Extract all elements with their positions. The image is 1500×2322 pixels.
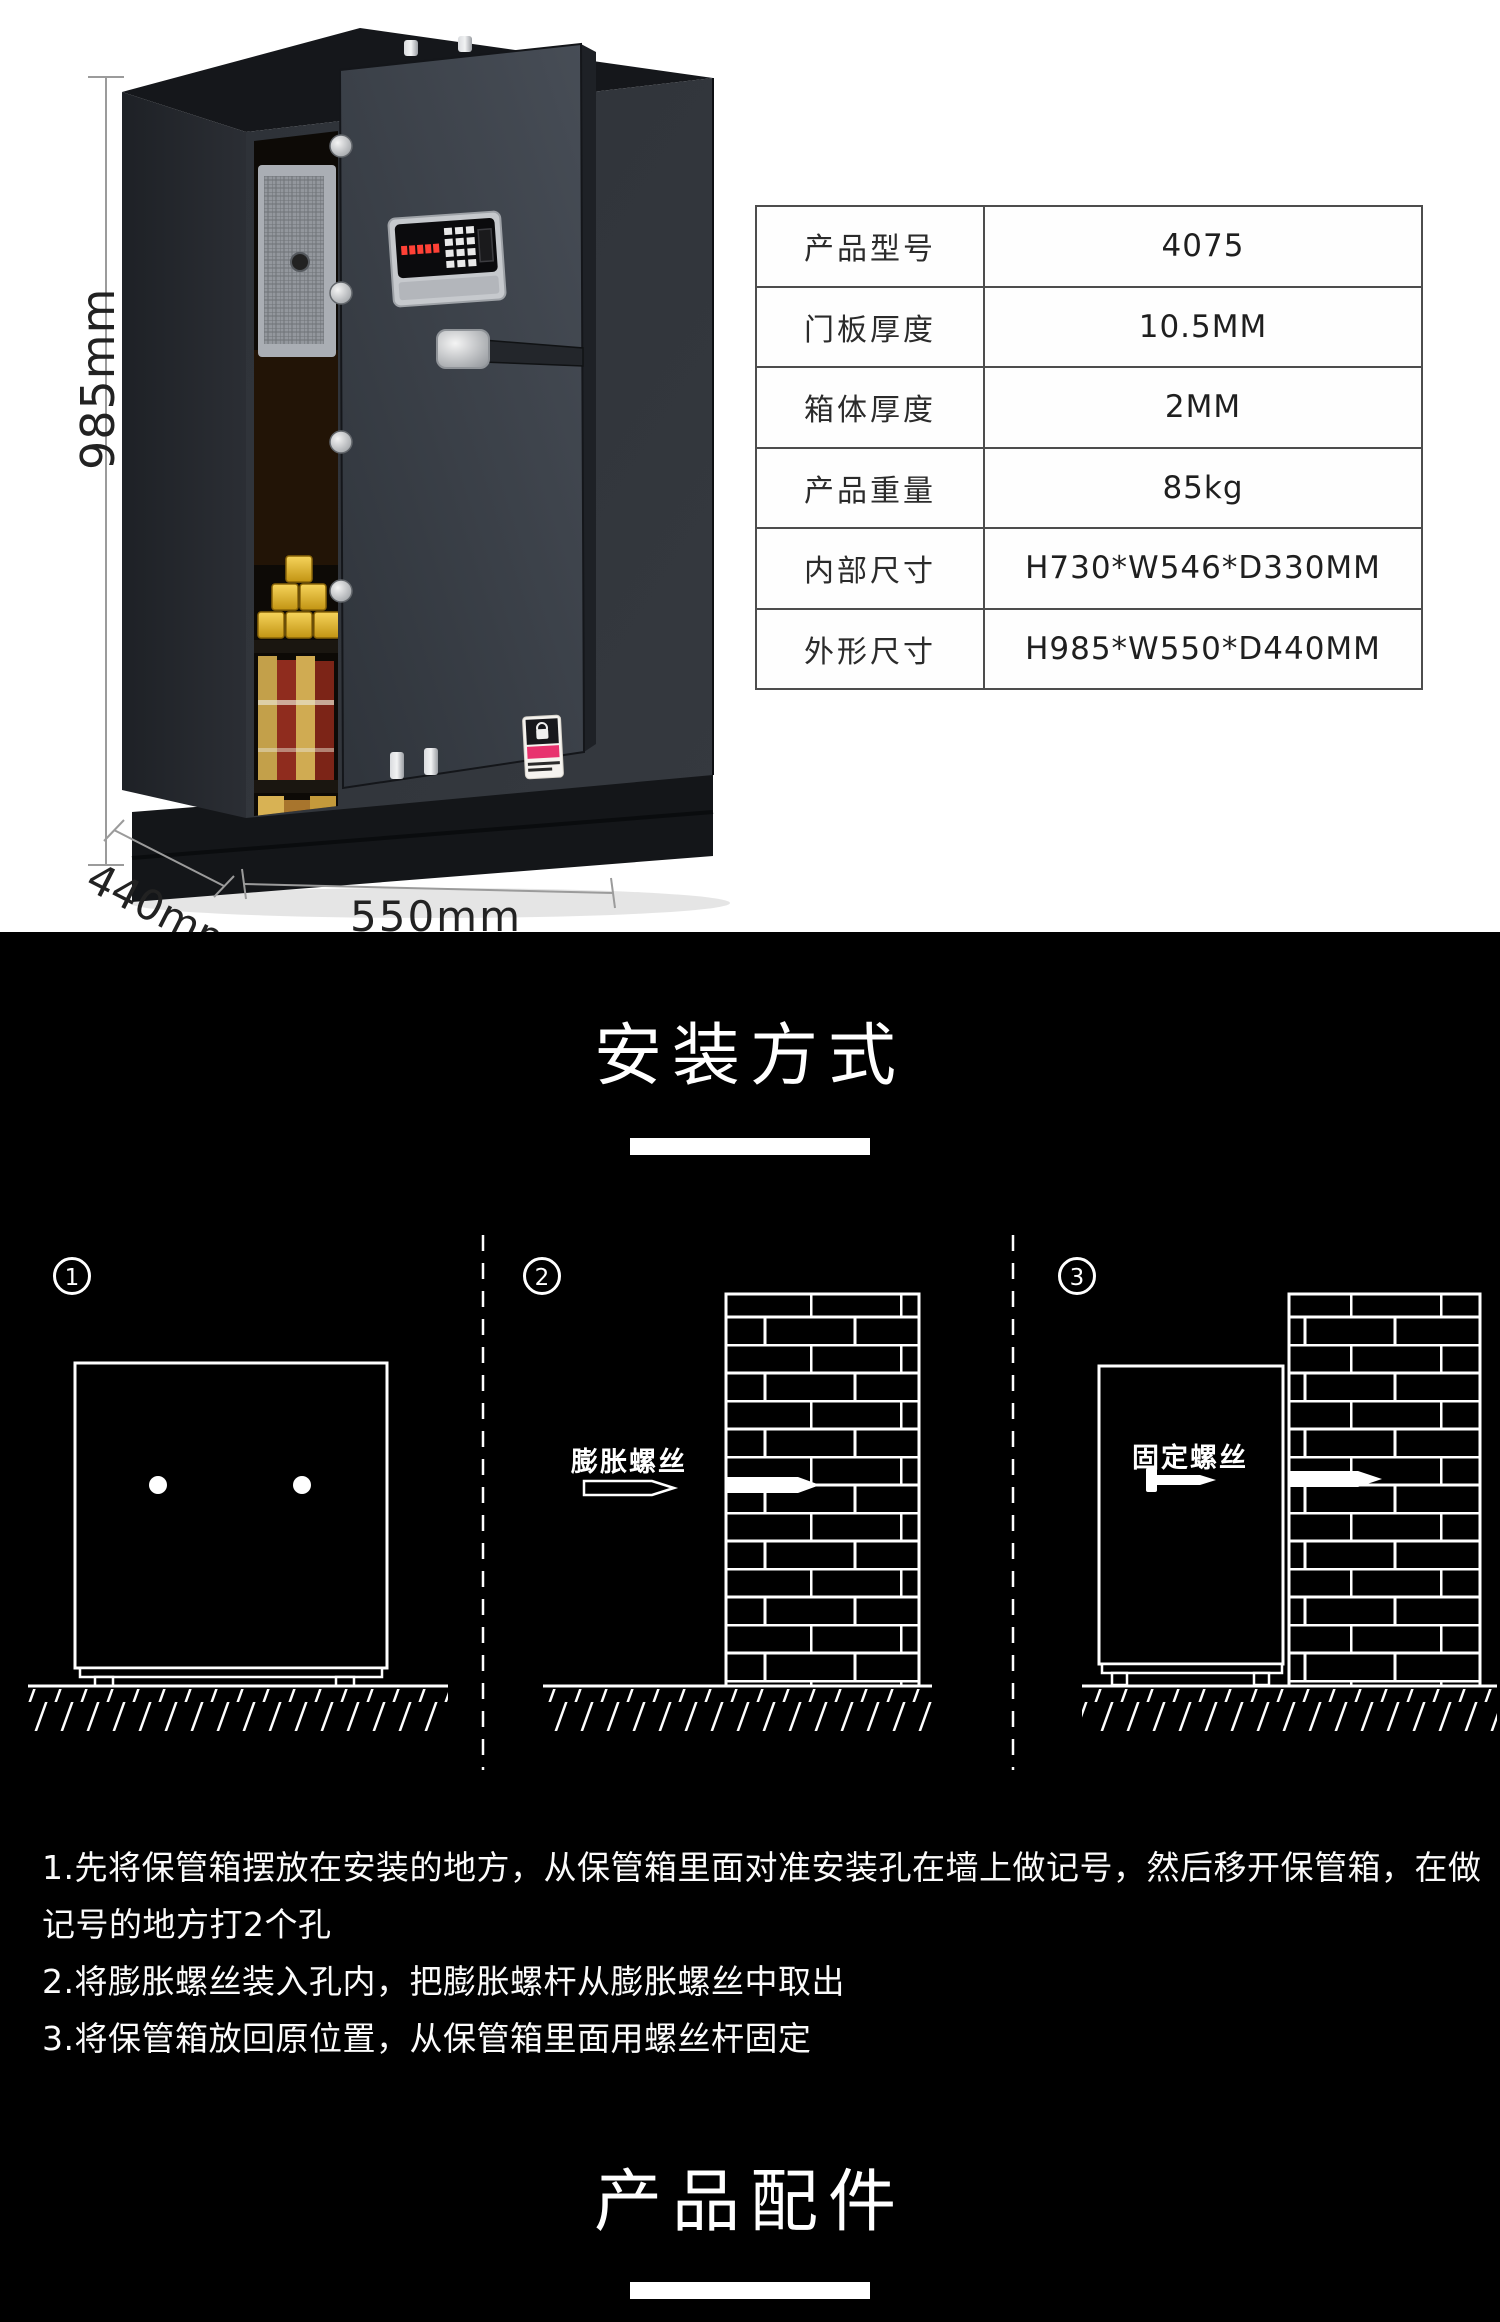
shelf	[252, 780, 340, 793]
fixing-screw-label: 固定螺丝	[1110, 1436, 1270, 1475]
ground-hatch	[28, 1689, 448, 1731]
step-2-badge: 2	[523, 1257, 561, 1295]
diagram-step-2	[543, 1294, 932, 1731]
safe-door	[330, 36, 596, 788]
door-bottom-bolt	[390, 752, 404, 779]
dimension-height-label: 985mm	[71, 330, 117, 470]
ground-hatch	[1082, 1689, 1497, 1731]
drill-hole-mark	[149, 1476, 167, 1494]
expansion-screw-icon	[584, 1481, 674, 1495]
spec-label: 产品重量	[757, 449, 985, 528]
brick-wall	[1289, 1294, 1480, 1686]
product-detail-page: 985mm 440mm 550mm 产品型号 4075 门板厚度 10.5MM …	[0, 0, 1500, 2322]
spec-label: 外形尺寸	[757, 610, 985, 689]
spec-value: H985*W550*D440MM	[985, 610, 1421, 689]
drill-hole-mark	[293, 1476, 311, 1494]
product-photo-section: 985mm 440mm 550mm 产品型号 4075 门板厚度 10.5MM …	[0, 0, 1500, 932]
spec-table: 产品型号 4075 门板厚度 10.5MM 箱体厚度 2MM 产品重量 85kg…	[755, 205, 1423, 690]
installation-title: 安装方式	[0, 1000, 1500, 1099]
instruction-line-1: 1.先将保管箱摆放在安装的地方，从保管箱里面对准安装孔在墙上做记号，然后移开保管…	[42, 1841, 1482, 1889]
instruction-line-3: 2.将膨胀螺丝装入孔内，把膨胀螺杆从膨胀螺丝中取出	[42, 1955, 845, 2003]
spec-row-inner-size: 内部尺寸 H730*W546*D330MM	[757, 527, 1421, 608]
spec-row-outer-size: 外形尺寸 H985*W550*D440MM	[757, 608, 1421, 689]
door-bottom-bolt	[424, 748, 438, 775]
ground-hatch	[543, 1689, 932, 1731]
step-1-badge: 1	[53, 1257, 91, 1295]
inner-safe-box	[258, 165, 336, 357]
spec-label: 箱体厚度	[757, 368, 985, 447]
instruction-line-4: 3.将保管箱放回原位置，从保管箱里面用螺丝杆固定	[42, 2012, 812, 2060]
spec-label: 门板厚度	[757, 288, 985, 367]
fingerprint-scanner	[478, 229, 493, 262]
safe-interior	[252, 121, 340, 856]
security-sticker	[522, 715, 563, 779]
keypad-panel	[388, 211, 506, 307]
books-row-1	[258, 656, 334, 780]
diagram-step-3	[1082, 1294, 1497, 1731]
shelf	[252, 640, 340, 653]
spec-value: 4075	[985, 207, 1421, 286]
instruction-line-2: 记号的地方打2个孔	[42, 1898, 332, 1946]
door-top-bolt	[458, 36, 472, 52]
spec-row-body-thickness: 箱体厚度 2MM	[757, 366, 1421, 447]
spec-row-model: 产品型号 4075	[757, 207, 1421, 286]
accessories-title: 产品配件	[0, 2146, 1500, 2245]
installation-title-underline-bar	[630, 1138, 870, 1155]
spec-value: H730*W546*D330MM	[985, 529, 1421, 608]
spec-value: 2MM	[985, 368, 1421, 447]
spec-value: 85kg	[985, 449, 1421, 528]
dimension-width-label: 550mm	[350, 892, 510, 936]
door-top-bolt	[404, 40, 418, 56]
diagram-step-1	[28, 1363, 448, 1731]
spec-label: 内部尺寸	[757, 529, 985, 608]
step-3-badge: 3	[1058, 1257, 1096, 1295]
spec-row-weight: 产品重量 85kg	[757, 447, 1421, 528]
expansion-screw-label: 膨胀螺丝	[549, 1440, 709, 1479]
spec-row-door-thickness: 门板厚度 10.5MM	[757, 286, 1421, 367]
installation-diagrams	[0, 1230, 1500, 1790]
spec-label: 产品型号	[757, 207, 985, 286]
accessories-title-underline-bar	[630, 2282, 870, 2299]
spec-value: 10.5MM	[985, 288, 1421, 367]
